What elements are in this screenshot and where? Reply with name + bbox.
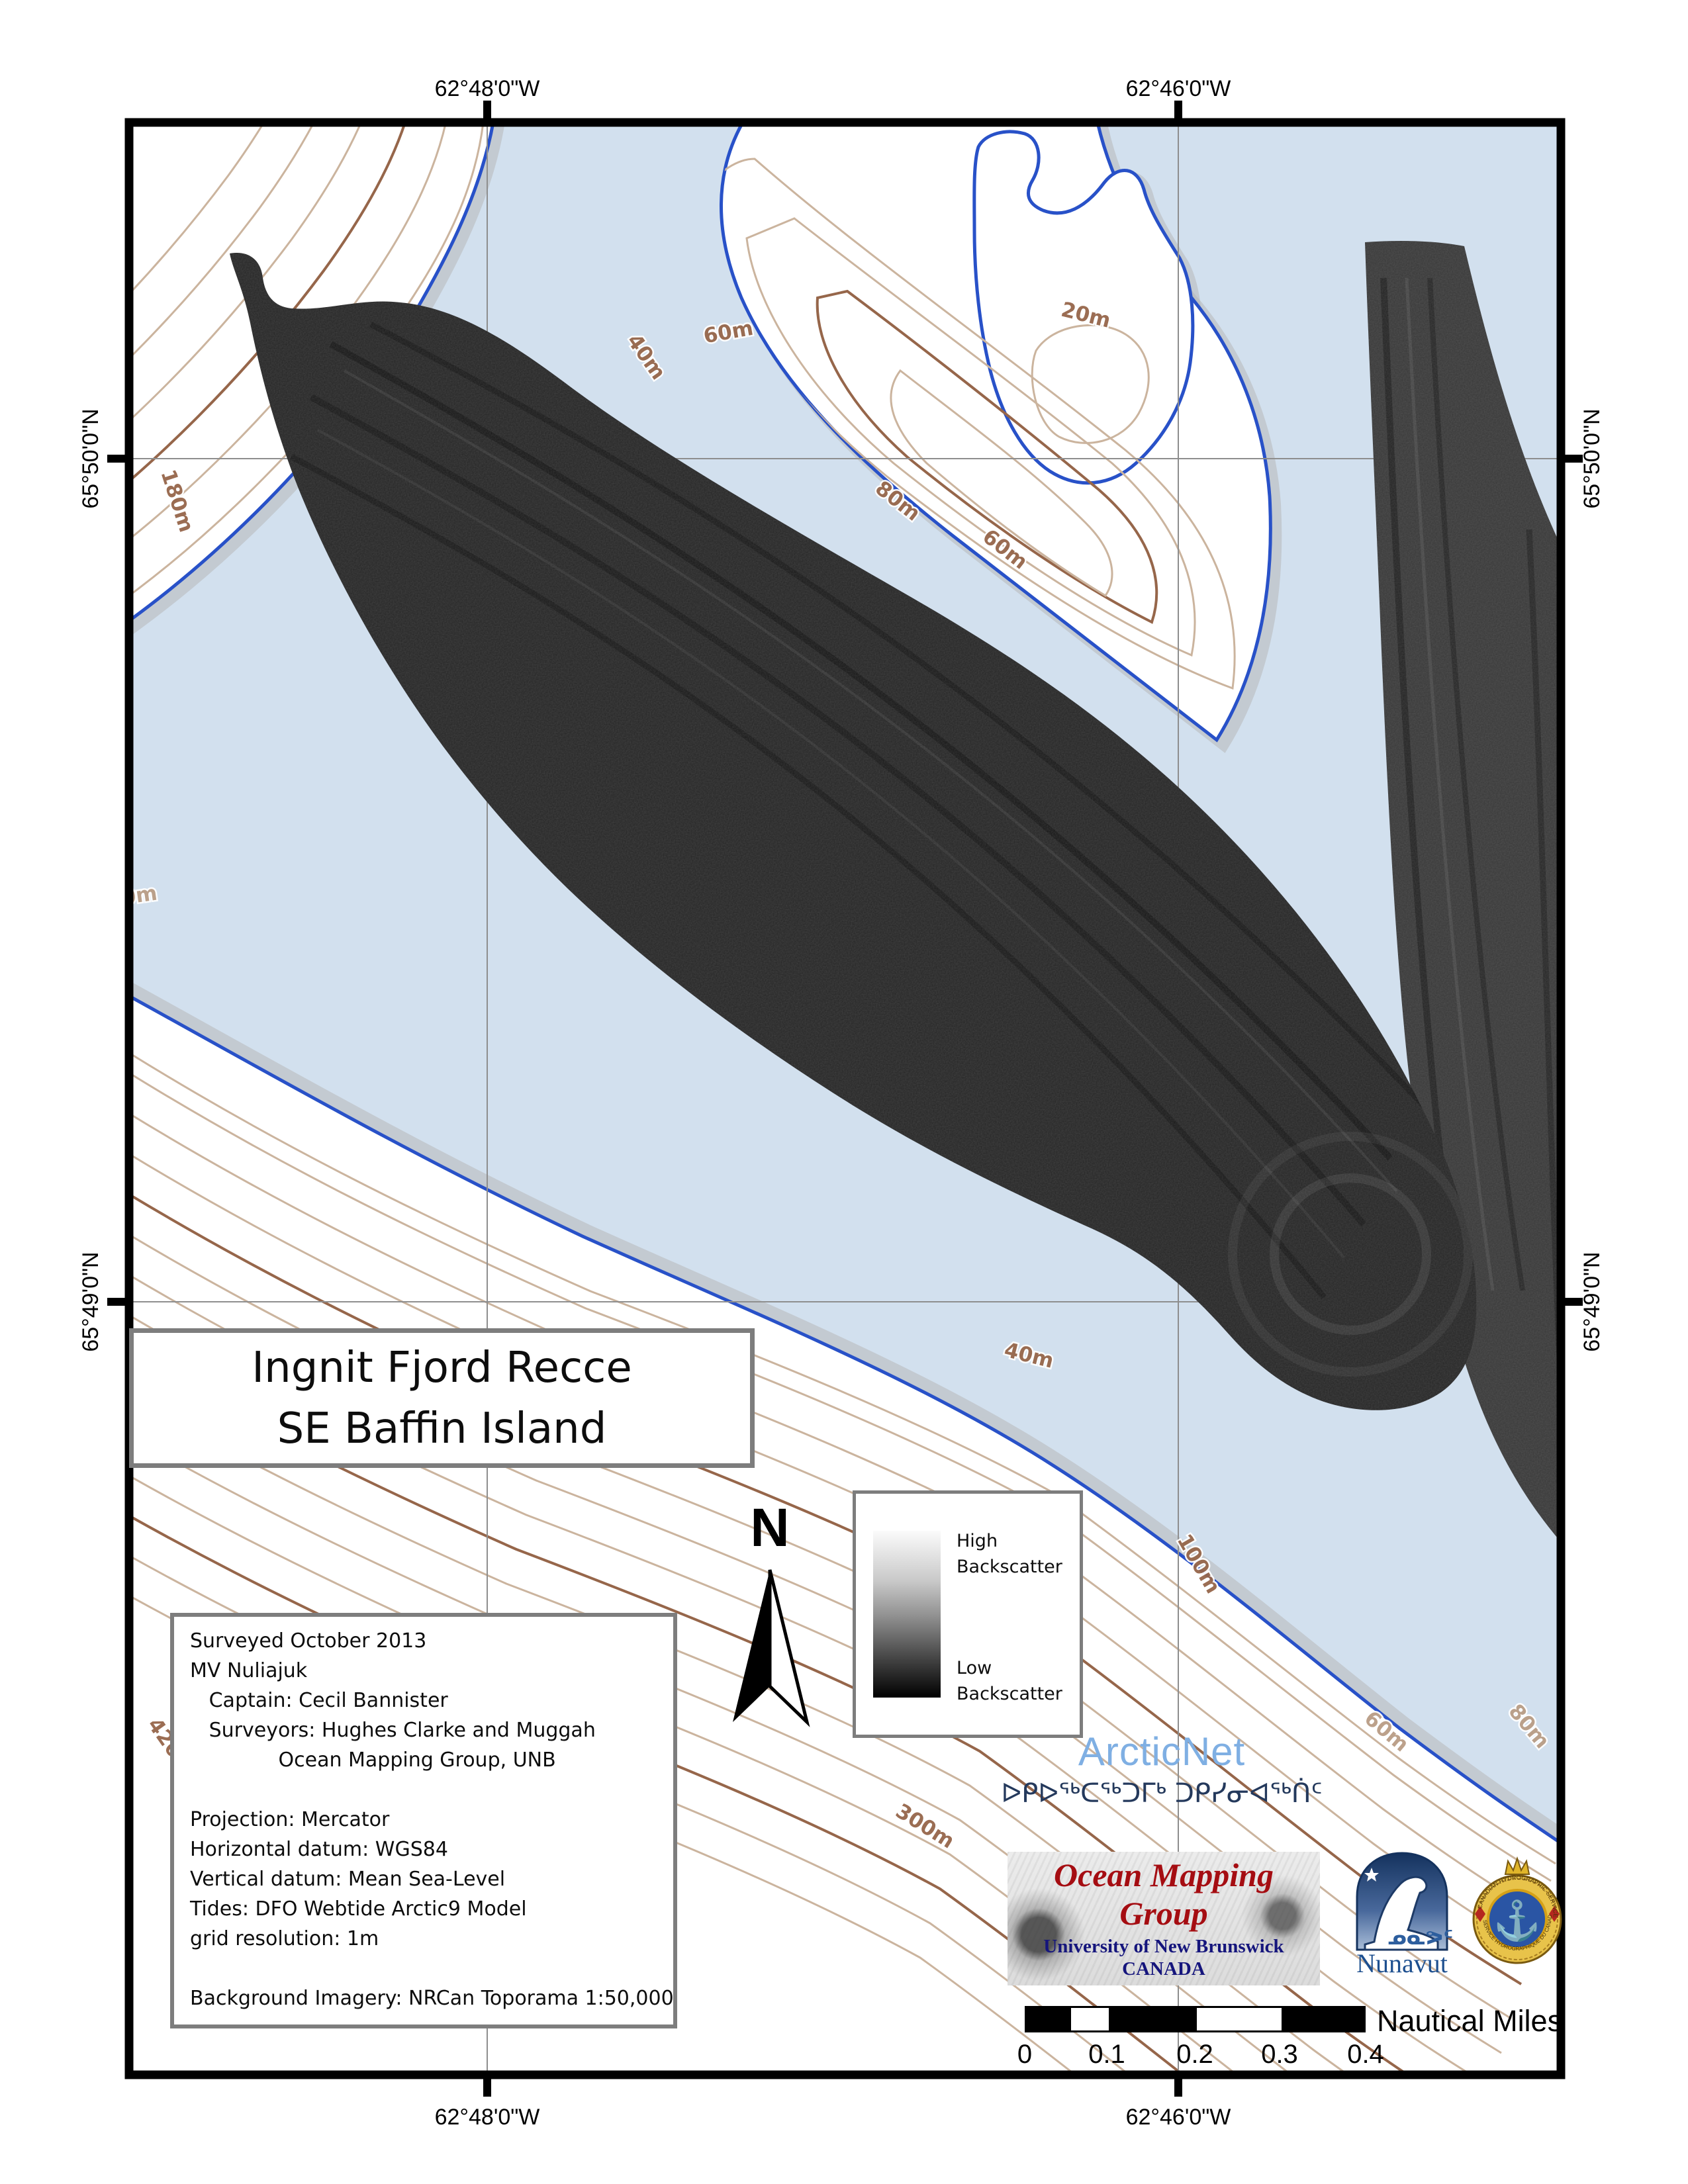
info-line: Horizontal datum: WGS84 xyxy=(190,1835,657,1864)
scale-bar-labels: 00.10.20.30.4 xyxy=(992,2040,1429,2071)
lon-label-bottom-right: 62°46'0"W xyxy=(1126,2105,1231,2130)
info-line: Ocean Mapping Group, UNB xyxy=(190,1745,657,1775)
info-line: Vertical datum: Mean Sea-Level xyxy=(190,1864,657,1894)
lon-label-top-left: 62°48'0"W xyxy=(435,76,540,101)
lon-label-top-right: 62°46'0"W xyxy=(1126,76,1231,101)
scale-bar xyxy=(1025,2006,1366,2032)
scale-tick-label: 0.1 xyxy=(1088,2040,1125,2070)
arcticnet-logo: ArcticNet ᐅᑭᐅᖅᑕᖅᑐᒥᒃ ᑐᑭᓯᓂᐊᖅᑏᑦ xyxy=(957,1729,1367,1809)
anchor-icon: ⚓ xyxy=(1493,1899,1541,1942)
omg-canada-label: CANADA xyxy=(1008,1958,1320,1980)
info-line: Projection: Mercator xyxy=(190,1805,657,1835)
info-line: Background Imagery: NRCan Toporama 1:50,… xyxy=(190,1983,657,2013)
scale-tick-label: 0 xyxy=(1017,2040,1032,2070)
north-arrow-icon xyxy=(718,1562,824,1727)
lat-label-right-lower: 65°49'0"N xyxy=(1579,1251,1605,1351)
info-line: MV Nuliajuk xyxy=(190,1656,657,1686)
info-line: Captain: Cecil Bannister xyxy=(190,1686,657,1715)
backscatter-legend: High Backscatter Low Backscatter xyxy=(853,1490,1083,1738)
legend-high-label: High Backscatter xyxy=(957,1528,1076,1580)
crown-icon xyxy=(1505,1858,1529,1874)
omg-wordmark: Ocean Mapping Group xyxy=(1008,1856,1320,1933)
map-title-line1: Ingnit Fjord Recce xyxy=(134,1338,750,1398)
lat-label-left-upper: 65°50'0"N xyxy=(78,408,103,508)
omg-unb-label: University of New Brunswick xyxy=(1008,1936,1320,1958)
scale-tick-label: 0.3 xyxy=(1261,2040,1298,2070)
omg-logo: Ocean Mapping Group University of New Br… xyxy=(1008,1852,1320,1985)
chs-seal: CANADIAN HYDROGRAPHIC SERVICE SERVICE HY… xyxy=(1471,1853,1564,1972)
lon-label-bottom-left: 62°48'0"W xyxy=(435,2105,540,2130)
scale-unit-label: Nautical Miles xyxy=(1377,2004,1562,2038)
title-box: Ingnit Fjord Recce SE Baffin Island xyxy=(129,1328,755,1468)
map-title-line2: SE Baffin Island xyxy=(134,1398,750,1459)
info-line: Surveyed October 2013 xyxy=(190,1626,657,1656)
arcticnet-syllabics: ᐅᑭᐅᖅᑕᖅᑐᒥᒃ ᑐᑭᓯᓂᐊᖅᑏᑦ xyxy=(957,1778,1367,1809)
legend-low-label: Low Backscatter xyxy=(957,1655,1076,1707)
info-line: grid resolution: 1m xyxy=(190,1924,657,1954)
nunavut-wordmark: Nunavut xyxy=(1356,1948,1448,1976)
lat-label-right-upper: 65°50'0"N xyxy=(1579,408,1605,508)
scale-tick-label: 0.2 xyxy=(1176,2040,1213,2070)
north-arrow-label: N xyxy=(727,1497,813,1559)
arcticnet-wordmark: ArcticNet xyxy=(957,1729,1367,1774)
scale-tick-label: 0.4 xyxy=(1347,2040,1384,2070)
info-line: Surveyors: Hughes Clarke and Muggah xyxy=(190,1715,657,1745)
nunavut-syllabics: ᓄᓇᕗᑦ xyxy=(1388,1927,1452,1950)
info-line: Tides: DFO Webtide Arctic9 Model xyxy=(190,1894,657,1924)
info-line xyxy=(190,1954,657,1983)
lat-label-left-lower: 65°49'0"N xyxy=(78,1251,103,1351)
map-sheet: { "title_box": { "line1": "Ingnit Fjord … xyxy=(0,0,1688,2184)
info-line xyxy=(190,1775,657,1805)
backscatter-gradient-bar xyxy=(873,1531,941,1698)
nunavut-logo: ᓄᓇᕗᑦ Nunavut xyxy=(1352,1850,1452,1976)
survey-info-box: Surveyed October 2013MV Nuliajuk Captain… xyxy=(170,1613,677,2028)
